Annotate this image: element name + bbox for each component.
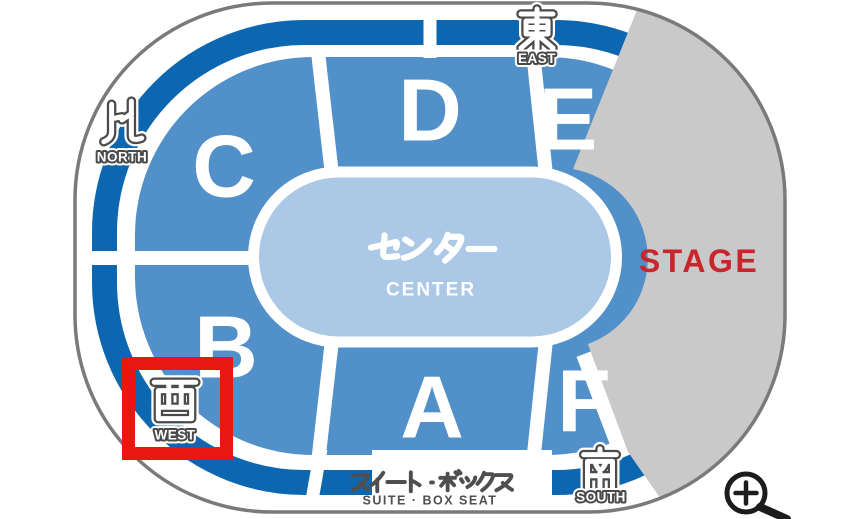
svg-text:WEST: WEST xyxy=(155,428,196,443)
svg-text:SOUTH: SOUTH xyxy=(576,490,626,505)
marker-west: WESTWESTWEST xyxy=(154,382,196,442)
section-d-label[interactable]: D xyxy=(398,61,462,160)
marker-north-en: NORTHNORTHNORTH xyxy=(97,150,148,165)
marker-east: EASTEASTEAST xyxy=(518,9,556,66)
marker-east-en: EASTEASTEAST xyxy=(518,51,556,66)
arena-map: STAGE C D E B A F CENTER SUITE · BOX SEA… xyxy=(0,0,862,519)
section-a-label[interactable]: A xyxy=(400,358,464,457)
zoom-in-button[interactable] xyxy=(727,474,787,519)
section-e-label[interactable]: E xyxy=(539,70,598,169)
marker-south-kanji xyxy=(584,449,617,488)
marker-south: SOUTHSOUTHSOUTH xyxy=(576,449,626,505)
arena-map-canvas: STAGE C D E B A F CENTER SUITE · BOX SEA… xyxy=(0,0,862,519)
marker-south-en: SOUTHSOUTHSOUTH xyxy=(576,490,626,505)
marker-east-kanji xyxy=(521,9,553,51)
marker-west-en: WESTWESTWEST xyxy=(155,428,196,443)
svg-text:EAST: EAST xyxy=(518,51,556,66)
suite-box-label-en: SUITE · BOX SEAT xyxy=(363,494,498,508)
center-label-en: CENTER xyxy=(386,280,476,301)
marker-west-kanji xyxy=(154,382,196,418)
stage-label: STAGE xyxy=(639,243,759,279)
magnifier-handle xyxy=(760,507,787,519)
center-zone[interactable] xyxy=(254,172,617,342)
section-c-label[interactable]: C xyxy=(192,117,256,216)
svg-text:NORTH: NORTH xyxy=(97,150,148,165)
section-f-label[interactable]: F xyxy=(557,352,611,451)
